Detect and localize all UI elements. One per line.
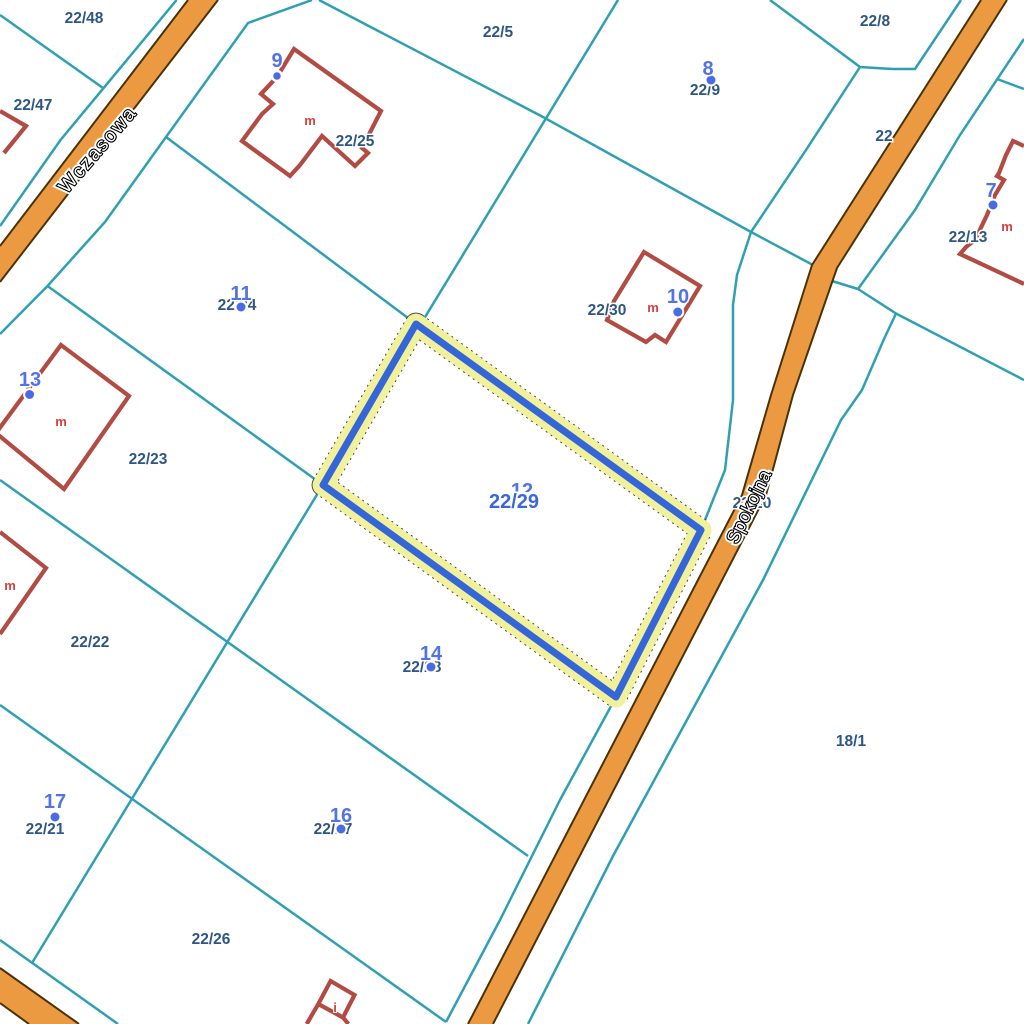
- svg-text:m: m: [4, 578, 16, 593]
- svg-text:14: 14: [420, 643, 443, 665]
- svg-text:7: 7: [985, 180, 996, 202]
- svg-text:m: m: [55, 414, 67, 429]
- svg-text:22/48: 22/48: [65, 10, 104, 27]
- svg-text:22/26: 22/26: [192, 931, 231, 948]
- svg-text:18/1: 18/1: [836, 733, 867, 750]
- svg-text:8: 8: [702, 58, 713, 80]
- svg-text:22/25: 22/25: [336, 133, 375, 150]
- svg-text:m: m: [647, 300, 659, 315]
- svg-text:22/30: 22/30: [588, 302, 627, 319]
- svg-text:22/29: 22/29: [489, 491, 539, 513]
- svg-text:22/22: 22/22: [71, 634, 110, 651]
- svg-text:16: 16: [330, 805, 352, 827]
- svg-text:22/13: 22/13: [949, 229, 988, 246]
- svg-text:22/23: 22/23: [129, 451, 168, 468]
- svg-text:13: 13: [19, 369, 41, 391]
- svg-text:22/5: 22/5: [483, 24, 514, 41]
- svg-text:m: m: [304, 113, 316, 128]
- svg-text:9: 9: [271, 50, 282, 72]
- svg-text:17: 17: [44, 791, 66, 813]
- svg-text:22/8: 22/8: [860, 13, 891, 30]
- svg-text:m: m: [1001, 219, 1013, 234]
- svg-text:10: 10: [667, 286, 689, 308]
- svg-text:22/21: 22/21: [26, 821, 65, 838]
- svg-text:22: 22: [875, 128, 892, 145]
- svg-text:i: i: [333, 1000, 337, 1015]
- svg-text:11: 11: [230, 283, 251, 305]
- svg-text:22/9: 22/9: [690, 82, 721, 99]
- svg-text:22/47: 22/47: [14, 97, 53, 114]
